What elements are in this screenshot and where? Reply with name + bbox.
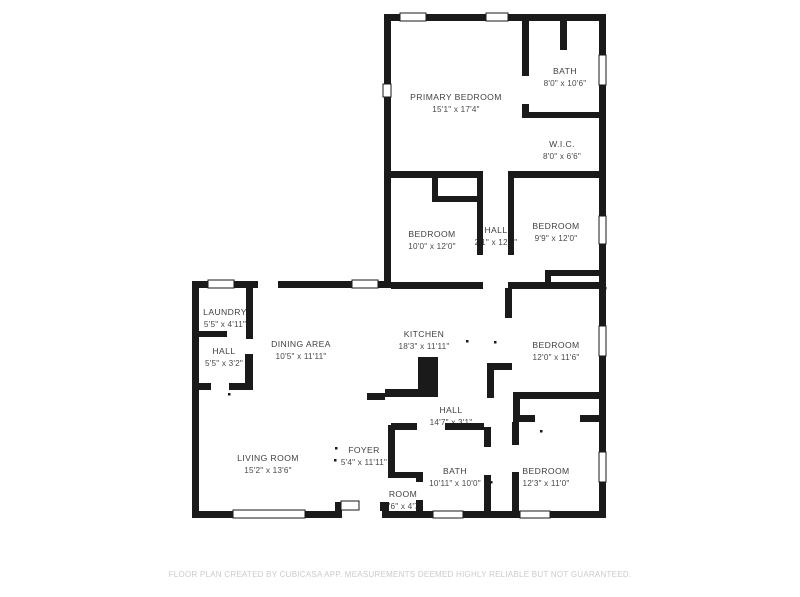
wall [545, 270, 599, 276]
wall [389, 511, 606, 518]
wall [505, 288, 512, 318]
wall [512, 422, 519, 445]
wall [391, 282, 483, 289]
door-mark [335, 447, 338, 450]
window [486, 13, 508, 21]
room-name-label: DINING AREA [271, 339, 331, 349]
room-dims-label: 5'5" x 3'2" [205, 359, 243, 368]
room-dims-label: 10'0" x 12'0" [408, 242, 456, 251]
wall [508, 282, 606, 289]
door-mark [334, 459, 337, 462]
wall [380, 502, 388, 511]
wall [199, 331, 227, 337]
wall [512, 472, 519, 511]
room-dims-label: 8'0" x 10'6" [544, 79, 587, 88]
room-name-label: BEDROOM [532, 340, 579, 350]
wall [388, 425, 395, 478]
wall [484, 475, 491, 511]
wall [487, 363, 512, 370]
room-dims-label: 8'0" x 6'6" [543, 152, 581, 161]
door-mark [228, 393, 231, 396]
window [233, 510, 305, 518]
window [383, 84, 391, 97]
room-name-label: ROOM [389, 489, 417, 499]
wall [367, 393, 385, 400]
room-name-label: HALL [484, 225, 507, 235]
window [400, 13, 426, 21]
window [433, 511, 463, 518]
door-mark [604, 287, 607, 290]
wall [580, 415, 606, 422]
window [208, 280, 234, 288]
wall [508, 178, 514, 255]
wall [445, 423, 484, 430]
wall [416, 500, 423, 511]
wall [199, 383, 211, 390]
room-name-label: BEDROOM [522, 466, 569, 476]
window [599, 326, 606, 356]
wall [522, 112, 606, 118]
room-name-label: HALL [212, 346, 235, 356]
window [520, 511, 550, 518]
door-mark [466, 340, 469, 343]
kitchen-island [385, 389, 418, 397]
room-name-label: LIVING ROOM [237, 453, 299, 463]
room-dims-label: 5'5" x 4'11" [204, 320, 246, 329]
wall [416, 472, 423, 482]
room-dims-label: 12'0" x 11'6" [533, 353, 580, 362]
wall [384, 14, 391, 288]
window [352, 280, 378, 288]
entry-stoop [341, 501, 359, 510]
wall [560, 14, 567, 50]
door-mark [494, 341, 497, 344]
wall [484, 427, 491, 447]
room-name-label: LAUNDRY [203, 307, 247, 317]
room-name-label: BEDROOM [532, 221, 579, 231]
door-mark [540, 430, 543, 433]
wall [477, 178, 483, 255]
disclaimer-text: FLOOR PLAN CREATED BY CUBICASA APP. MEAS… [0, 570, 800, 579]
window [599, 216, 606, 244]
wall [192, 281, 199, 518]
window [599, 452, 606, 482]
room-dims-label: 18'3" x 11'11" [398, 342, 449, 351]
wall [513, 392, 606, 399]
room-name-label: BATH [443, 466, 467, 476]
room-dims-label: 5'4" x 11'11" [341, 458, 387, 467]
wall [245, 354, 253, 390]
wall [384, 171, 483, 178]
room-name-label: BATH [553, 66, 577, 76]
wall [508, 171, 606, 178]
room-dims-label: 9'9" x 12'0" [535, 234, 578, 243]
wall [246, 281, 253, 339]
room-name-label: PRIMARY BEDROOM [410, 92, 502, 102]
room-name-label: KITCHEN [404, 329, 445, 339]
wall [438, 196, 483, 202]
wall [599, 14, 606, 518]
room-name-label: BEDROOM [408, 229, 455, 239]
wall [513, 399, 520, 415]
room-dims-label: 12'3" x 11'0" [523, 479, 570, 488]
kitchen-island [418, 357, 438, 397]
room-name-label: HALL [439, 405, 462, 415]
wall [432, 178, 438, 202]
floor-plan-drawing: PRIMARY BEDROOM15'1" x 17'4"BATH8'0" x 1… [0, 0, 800, 597]
wall [522, 14, 529, 76]
floor-plan-page: PRIMARY BEDROOM15'1" x 17'4"BATH8'0" x 1… [0, 0, 800, 597]
room-dims-label: 10'5" x 11'11" [275, 352, 326, 361]
wall [229, 383, 246, 390]
room-name-label: W.I.C. [549, 139, 575, 149]
room-dims-label: 15'1" x 17'4" [432, 105, 480, 114]
wall [513, 415, 535, 422]
room-dims-label: 15'2" x 13'6" [244, 466, 292, 475]
window [599, 55, 606, 85]
room-name-label: FOYER [348, 445, 380, 455]
room-dims-label: 10'11" x 10'0" [429, 479, 481, 488]
door-mark [490, 481, 493, 484]
